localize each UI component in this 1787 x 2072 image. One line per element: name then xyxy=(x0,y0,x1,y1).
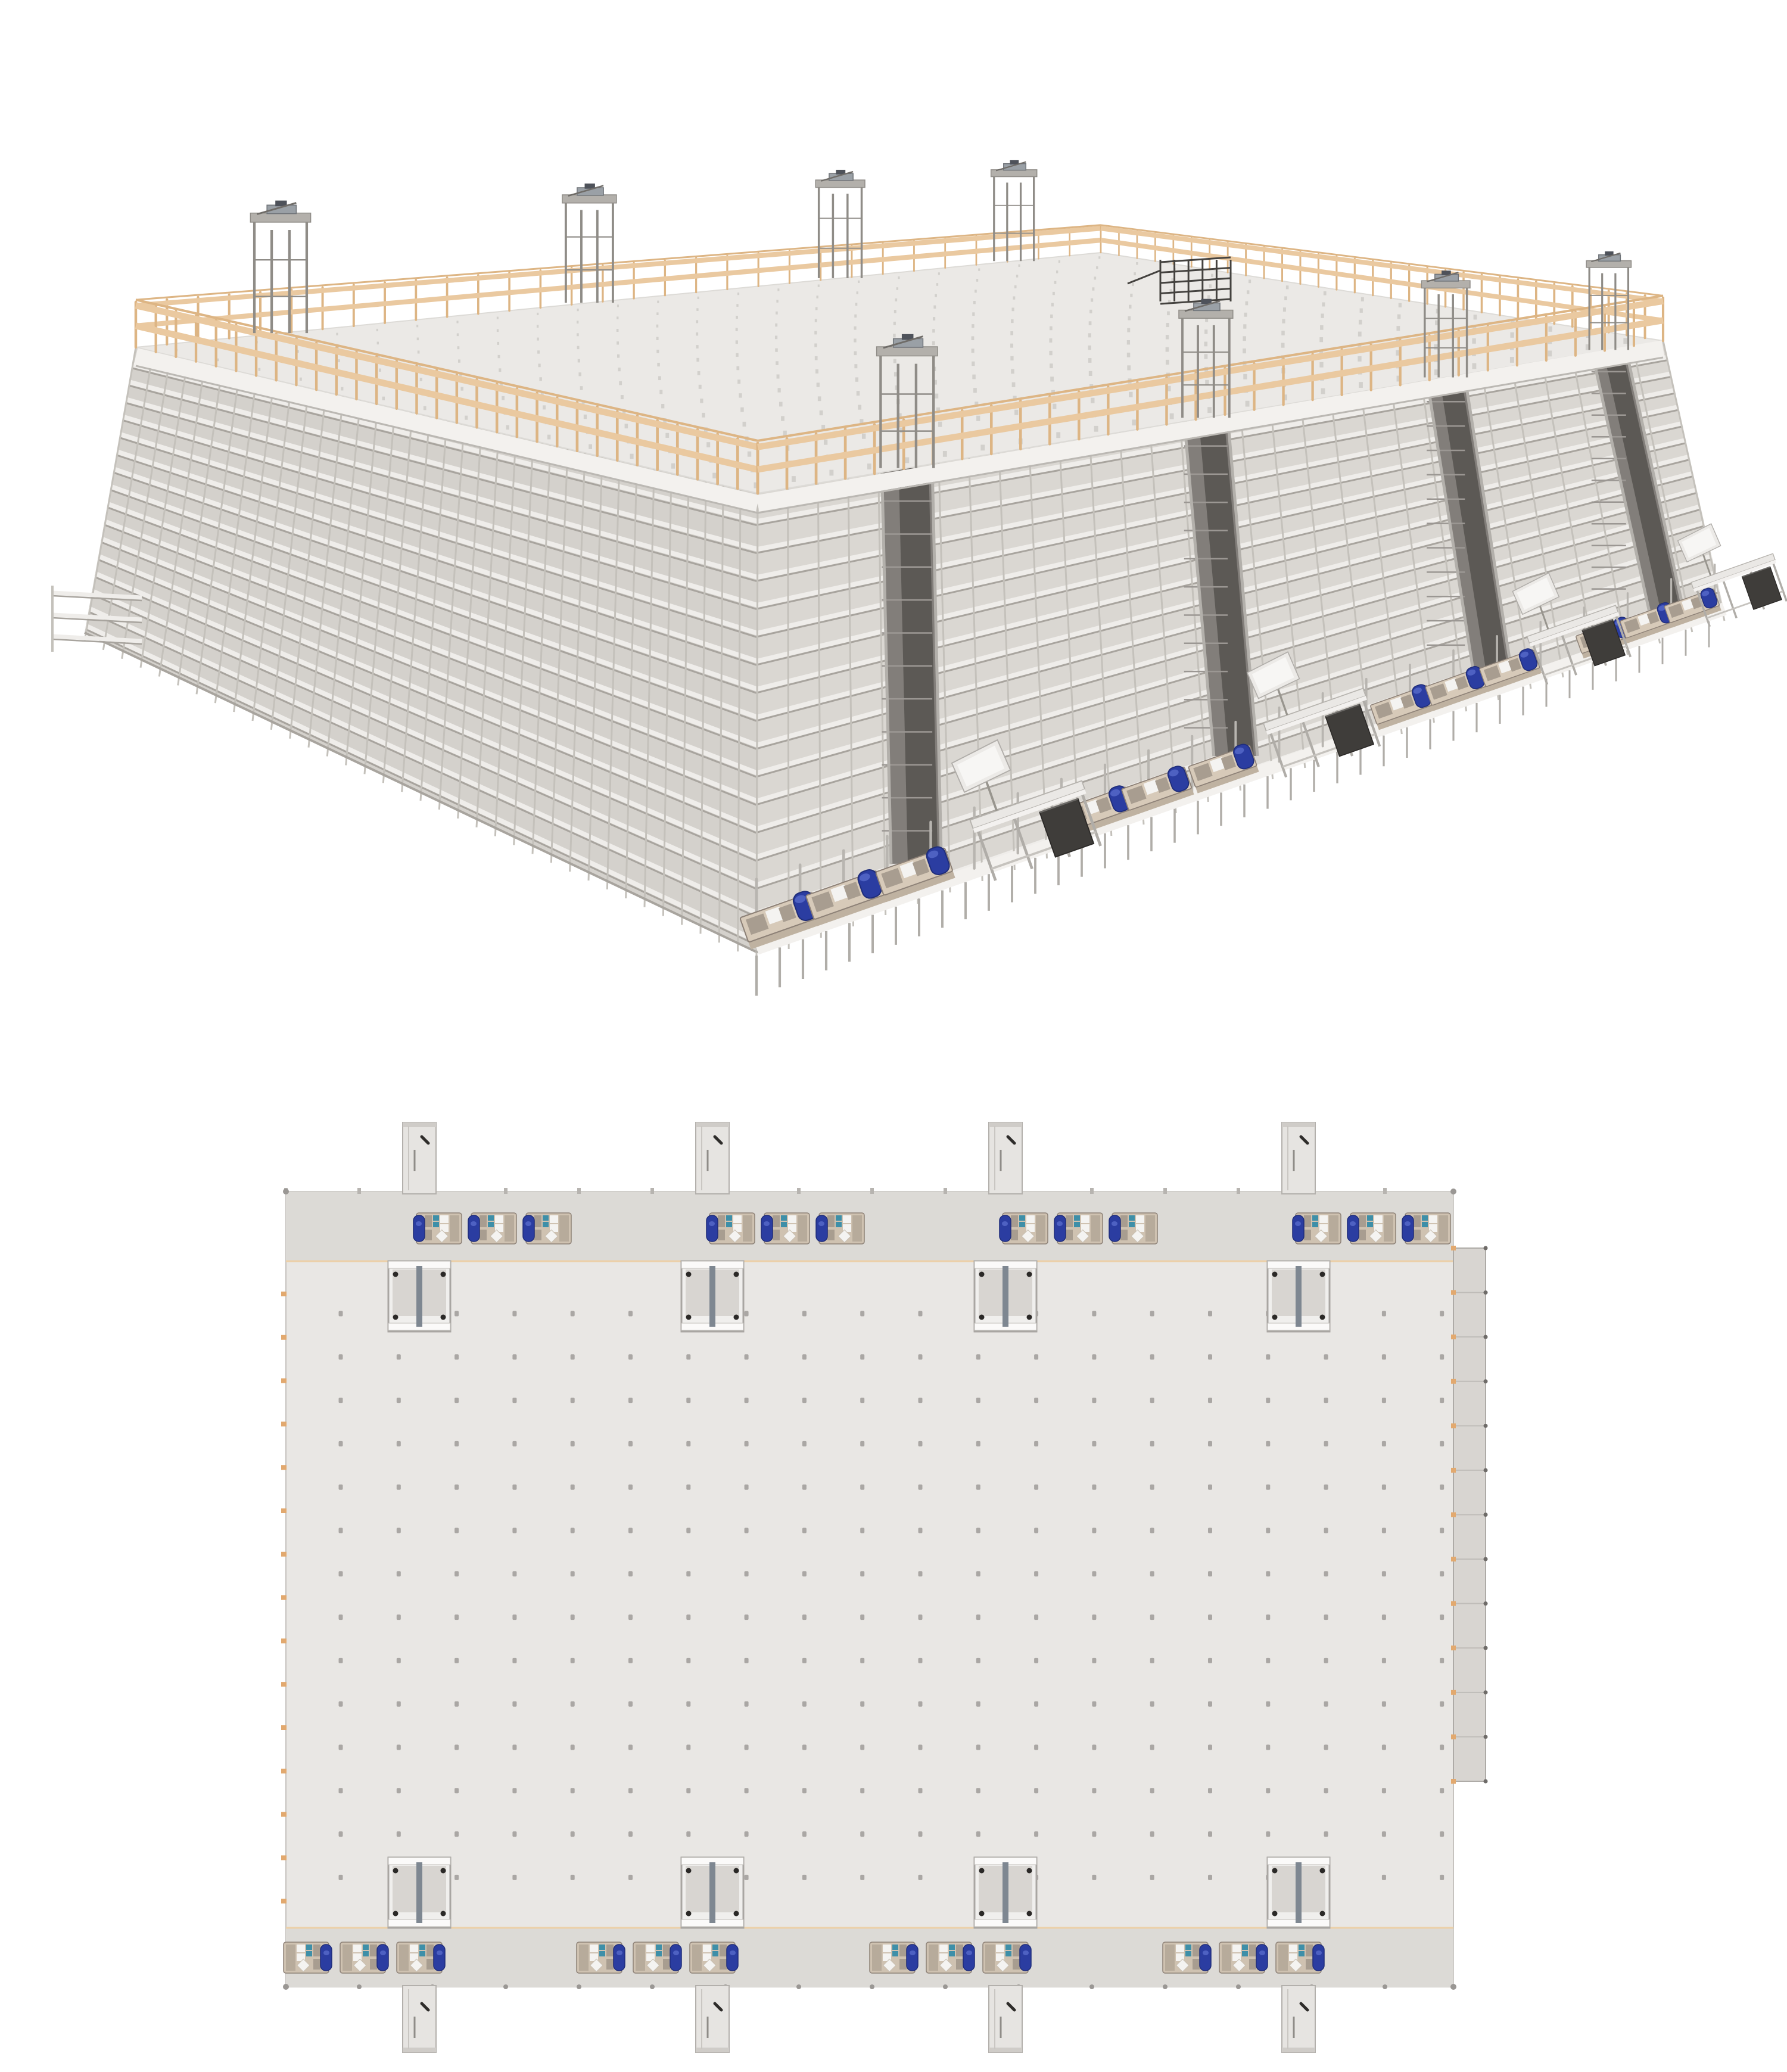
plan-workstation-tab xyxy=(989,1986,1022,2052)
plan-port-conveyor xyxy=(706,1213,755,1244)
plan-right-rack-strip xyxy=(1451,1246,1488,1784)
plan-port-conveyor xyxy=(761,1213,810,1244)
plan-lift-opening xyxy=(975,1858,1036,1928)
plan-port-conveyor xyxy=(284,1942,332,1973)
plan-port-conveyor xyxy=(983,1942,1031,1973)
plan-port-conveyor xyxy=(1293,1213,1341,1244)
plan-workstation-tab xyxy=(989,1122,1022,1194)
warehouse-scene xyxy=(0,0,1787,2072)
plan-port-conveyor xyxy=(1054,1213,1103,1244)
plan-port-conveyor xyxy=(1219,1942,1268,1973)
plan-lift-opening xyxy=(1268,1261,1330,1331)
plan-port-conveyor xyxy=(1000,1213,1048,1244)
plan-workstation-tab xyxy=(403,1986,436,2052)
plan-port-conveyor xyxy=(816,1213,864,1244)
plan-workstation-tab xyxy=(696,1986,729,2052)
plan-port-conveyor xyxy=(468,1213,516,1244)
left-end-ledge xyxy=(52,586,142,652)
plan-workstation-tab xyxy=(1282,1122,1315,1194)
plan-lift-opening xyxy=(388,1261,450,1331)
plan-lift-opening xyxy=(975,1261,1036,1331)
plan-port-conveyor xyxy=(690,1942,738,1973)
plan-port-conveyor xyxy=(1109,1213,1157,1244)
plan-lift-opening xyxy=(681,1858,743,1928)
plan-lift-opening xyxy=(1268,1858,1330,1928)
plan-port-conveyor xyxy=(340,1942,388,1973)
plan-port-conveyor xyxy=(633,1942,681,1973)
plan-workstation-tab xyxy=(1282,1986,1315,2052)
lift-shaft xyxy=(882,468,941,864)
plan-port-conveyor xyxy=(1402,1213,1450,1244)
plan-workstation-tab xyxy=(696,1122,729,1194)
plan-port-conveyor xyxy=(1163,1942,1211,1973)
render-canvas xyxy=(0,0,1787,2072)
plan-port-conveyor xyxy=(1347,1213,1396,1244)
plan-port-conveyor xyxy=(413,1213,462,1244)
plan-lift-opening xyxy=(681,1261,743,1331)
plan-port-conveyor xyxy=(397,1942,445,1973)
plan-workstation-tab xyxy=(403,1122,436,1194)
plan-port-conveyor xyxy=(926,1942,975,1973)
plan-port-conveyor xyxy=(523,1213,571,1244)
plan-view xyxy=(281,1122,1488,2052)
plan-port-conveyor xyxy=(577,1942,625,1973)
plan-lift-opening xyxy=(388,1858,450,1928)
plan-port-conveyor xyxy=(1276,1942,1324,1973)
plan-port-conveyor xyxy=(870,1942,918,1973)
perspective-view xyxy=(52,160,1787,996)
